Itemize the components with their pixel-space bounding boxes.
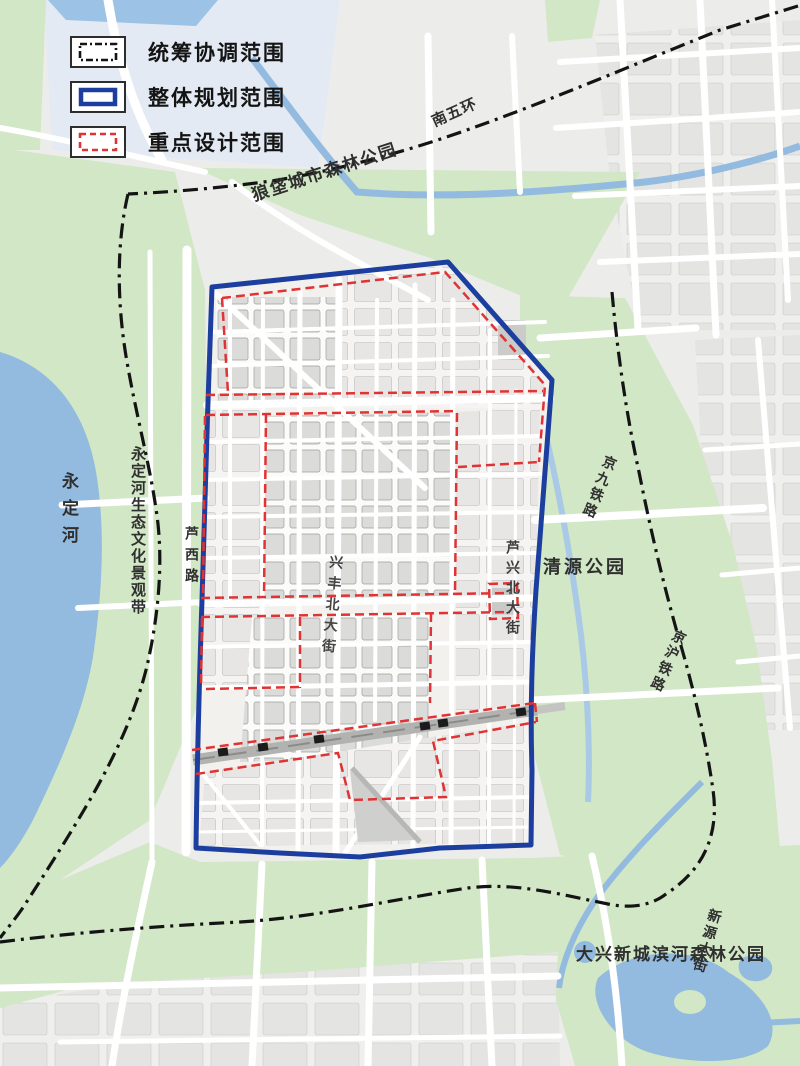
key-design-swatch-icon [70,126,126,158]
pond-island [674,990,706,1014]
label-yongding-river: 永定河 [56,472,81,553]
label-daxing-binhe-forest-park: 大兴新城滨河森林公园 [576,940,766,965]
legend-label-key-design: 重点设计范围 [148,127,286,157]
map-canvas [0,0,800,1066]
legend-label-coordination: 统筹协调范围 [148,37,286,67]
planning-map: 狼垡城市森林公园 南五环 永定河 永定河生态文化景观带 芦西路 芦兴北大街 兴丰… [0,0,800,1066]
legend-item-key-design: 重点设计范围 [70,126,286,158]
label-yongding-eco-belt: 永定河生态文化景观带 [128,446,149,616]
legend-label-overall: 整体规划范围 [148,82,286,112]
label-luxing-north-street: 芦兴北大街 [502,540,522,640]
legend-item-coordination: 统筹协调范围 [70,36,286,68]
legend-item-overall: 整体规划范围 [70,81,286,113]
label-luxi-road: 芦西路 [181,526,201,589]
legend: 统筹协调范围 整体规划范围 重点设计范围 [70,36,286,158]
coordination-swatch-icon [70,36,126,68]
label-qingyuan-park: 清源公园 [543,553,627,579]
overall-swatch-icon [70,81,126,113]
